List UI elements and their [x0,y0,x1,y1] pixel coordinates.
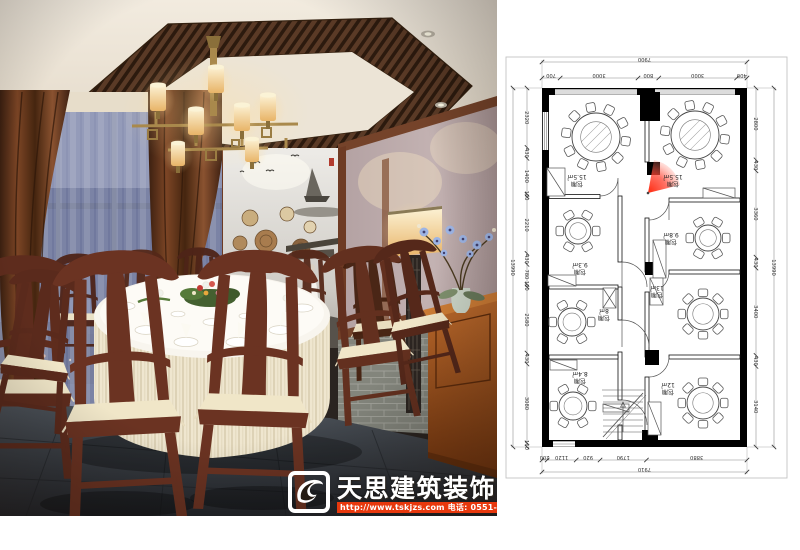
chair-plan [721,309,729,319]
chair-plan [596,161,606,171]
chair-plan [621,136,631,146]
chair-plan [550,401,558,411]
dimension-value: 2580 [523,313,529,326]
dimension-value: 430 [752,258,758,268]
chair-plan [685,100,695,110]
dimension-value: 430 [752,356,758,366]
chair-plan [695,159,705,169]
room-label: 包厢9.3㎡ [572,261,588,276]
chair-plan [678,398,686,408]
chair-plan [678,309,686,319]
dimension-value: 780 [523,269,529,279]
chair-plan [561,128,571,138]
room-label: 包厢12㎡ [661,381,675,396]
dimension-value: 3880 [690,454,703,460]
dining-table-plan [678,289,728,339]
dimension-value: 100 [523,281,529,291]
chair-plan [698,378,708,386]
dimension-value: 1400 [523,170,529,183]
dimension-value: 3080 [523,397,529,410]
dimension-value: 1790 [617,454,630,460]
room-label: 包厢8.4㎡ [572,370,588,385]
dining-table-plan [678,378,728,428]
rendering-scene [0,0,497,516]
dimension-value: 13990 [509,259,515,276]
chair-plan [698,332,708,340]
chair-plan [589,401,597,411]
brand-name: 天思建筑装饰 [337,475,496,502]
dimension-value: 700 [546,72,556,78]
dimension-value: 13990 [770,259,776,276]
dimension-value: 7900 [638,56,651,62]
dimension-value: 430 [752,160,758,170]
dimension-value: 430 [523,148,529,158]
chair-plan [549,317,557,327]
vignette [0,0,497,516]
chair-plan [586,102,596,112]
interior-rendering-photo [0,0,497,516]
dimension-value: 3000 [691,72,704,78]
dimension-value: 3140 [752,400,758,413]
tiansi-logo-icon [288,471,330,513]
chair-plan [720,134,730,144]
dimension-value: 2320 [523,111,529,124]
chair-plan [588,317,596,327]
chair-plan [660,126,670,136]
chair-plan [686,233,694,243]
dimension-value: 3400 [752,305,758,318]
dimension-value: 200 [540,454,550,460]
dimension-value: 920 [583,454,593,460]
chair-plan [698,421,708,429]
dimension-value: 1120 [555,454,568,460]
dimension-value: 430 [523,354,529,364]
room-label: 包厢8㎡ [598,307,610,322]
dimension-value: 2800 [752,117,758,130]
room-label: 包厢13㎡ [650,284,664,299]
chair-plan [698,289,708,297]
floorplan-panel: 包厢15.5㎡包厢15.5㎡包厢9.3㎡包厢9.8㎡包厢8㎡包厢13㎡包厢8.4… [497,0,800,550]
dimension-value: 100 [523,191,529,201]
floorplan-drawing: 包厢15.5㎡包厢15.5㎡包厢9.3㎡包厢9.8㎡包厢8㎡包厢13㎡包厢8.4… [497,0,800,550]
chair-plan [593,226,601,236]
room-label: 包厢9.8㎡ [663,231,679,246]
dimension-value: 430 [523,254,529,264]
chair-plan [723,233,731,243]
chair-plan [721,398,729,408]
presentation-canvas: 天思建筑装饰 http://www.tskjzs.com 电话: 0551-65… [0,0,800,550]
dimension-value: 400 [737,72,747,78]
dimension-value: 3360 [752,207,758,220]
dimension-value: 160 [523,440,529,450]
dimension-value: 800 [643,72,653,78]
dimension-value: 3000 [592,72,605,78]
chair-plan [556,226,564,236]
dimension-value: 7910 [638,466,651,472]
dimension-value: 2210 [523,219,529,232]
